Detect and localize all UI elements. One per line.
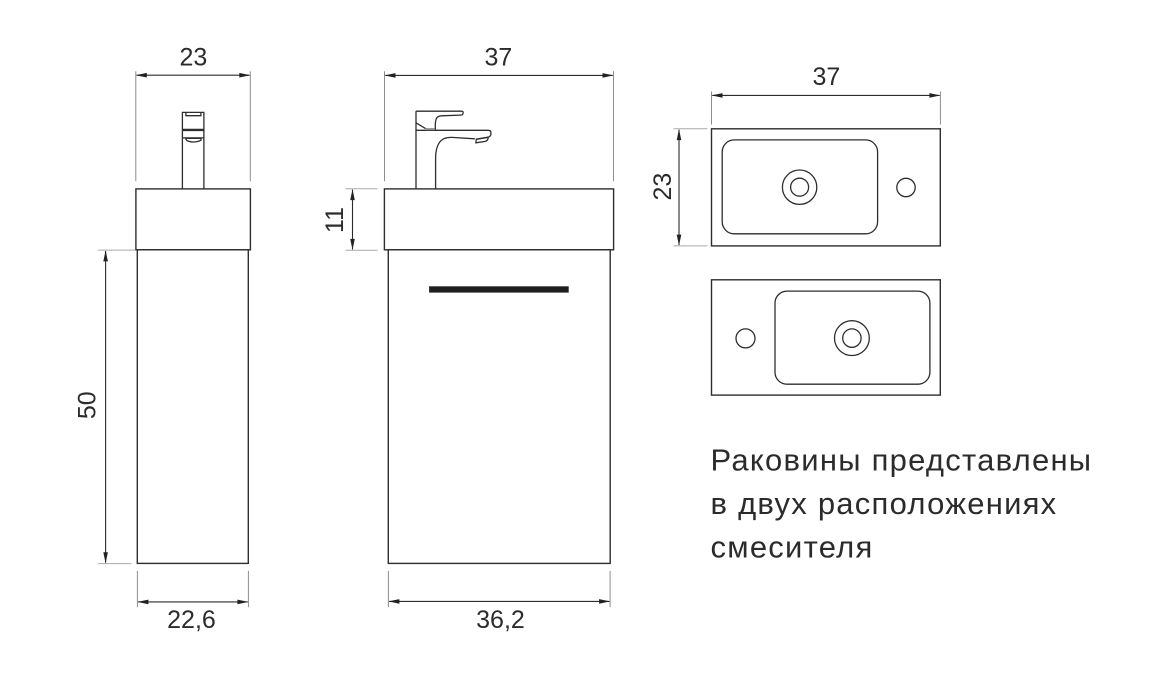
svg-text:в двух расположениях: в двух расположениях [711,486,1058,521]
svg-text:36,2: 36,2 [476,606,525,634]
svg-text:23: 23 [649,173,677,201]
svg-text:Раковины представлены: Раковины представлены [711,442,1093,477]
svg-text:23: 23 [179,44,207,72]
svg-text:22,6: 22,6 [167,606,216,634]
svg-text:37: 37 [812,63,840,91]
svg-text:11: 11 [321,207,349,233]
svg-text:50: 50 [73,391,101,419]
svg-text:смесителя: смесителя [711,529,874,564]
svg-text:37: 37 [484,44,512,72]
